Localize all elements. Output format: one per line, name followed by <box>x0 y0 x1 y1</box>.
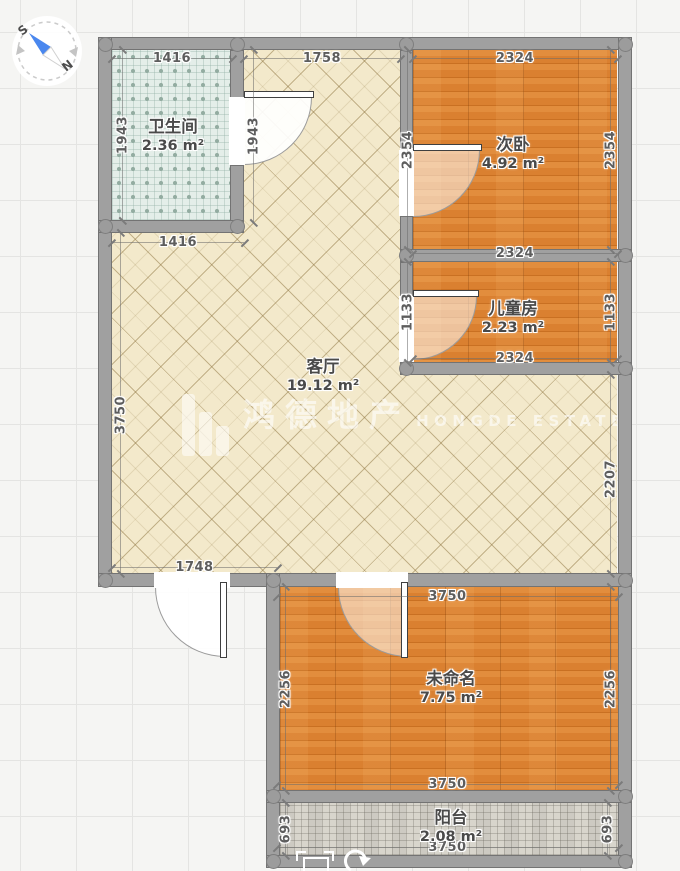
wall-segment[interactable] <box>98 220 244 233</box>
wall-segment[interactable] <box>98 37 112 587</box>
wall-joint-handle[interactable] <box>618 361 633 376</box>
unnamed-door-opening <box>336 572 408 588</box>
wall-segment[interactable] <box>230 50 244 98</box>
unnamed-door-leaf[interactable] <box>401 582 408 658</box>
wall-joint-handle[interactable] <box>266 573 281 588</box>
kids-door-opening <box>399 296 414 362</box>
wall-joint-handle[interactable] <box>230 37 245 52</box>
wall-segment[interactable] <box>618 37 632 862</box>
wall-joint-handle[interactable] <box>618 854 633 869</box>
wall-joint-handle[interactable] <box>98 37 113 52</box>
wall-joint-handle[interactable] <box>618 37 633 52</box>
wall-segment[interactable] <box>266 790 632 803</box>
wall-joint-handle[interactable] <box>230 219 245 234</box>
wall-joint-handle[interactable] <box>618 573 633 588</box>
bathroom-door-leaf[interactable] <box>244 91 314 98</box>
bedroom2-door-opening <box>399 150 414 216</box>
entrance-door-leaf[interactable] <box>220 582 227 658</box>
wall-joint-handle[interactable] <box>618 248 633 263</box>
wall-joint-handle[interactable] <box>399 361 414 376</box>
wall-segment[interactable] <box>400 50 413 148</box>
wall-segment[interactable] <box>400 362 632 375</box>
wall-segment[interactable] <box>400 249 632 262</box>
wall-joint-handle[interactable] <box>266 854 281 869</box>
entrance-door-opening <box>154 572 230 588</box>
wall-joint-handle[interactable] <box>399 37 414 52</box>
compass[interactable]: S N <box>8 12 86 90</box>
bedroom2-door-leaf[interactable] <box>413 144 482 151</box>
wall-joint-handle[interactable] <box>399 248 414 263</box>
kids-door-leaf[interactable] <box>413 290 479 297</box>
selection-square-icon[interactable] <box>303 857 329 871</box>
rotate-arrow-icon[interactable] <box>344 849 374 871</box>
room-floor-bathroom[interactable] <box>112 50 230 220</box>
wall-segment[interactable] <box>266 573 280 862</box>
room-floor-unnamed[interactable] <box>280 587 618 790</box>
wall-segment[interactable] <box>98 37 632 50</box>
wall-joint-handle[interactable] <box>98 573 113 588</box>
entrance-door-swing[interactable] <box>155 587 225 657</box>
floorplan-canvas: S N 卫生间2.36 m²客厅19.12 m²次卧4.92 m²儿童房2.23… <box>0 0 680 871</box>
room-floor-balcony[interactable] <box>280 803 618 855</box>
wall-joint-handle[interactable] <box>618 789 633 804</box>
wall-segment[interactable] <box>400 262 413 296</box>
bathroom-door-opening <box>229 97 245 165</box>
wall-joint-handle[interactable] <box>98 219 113 234</box>
wall-joint-handle[interactable] <box>266 789 281 804</box>
